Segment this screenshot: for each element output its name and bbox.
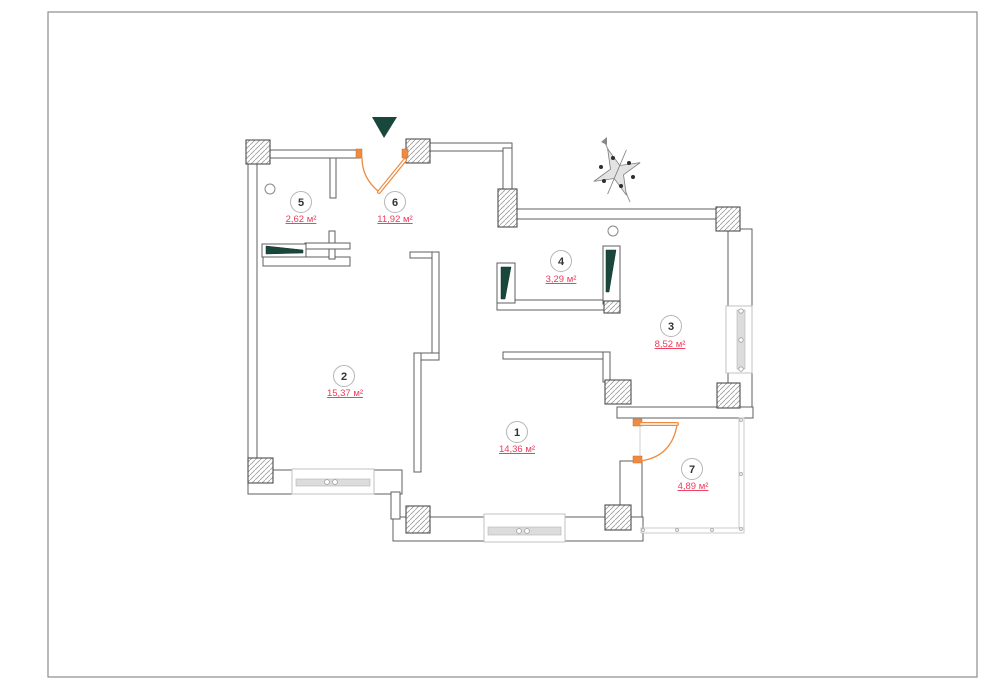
pillar (498, 189, 517, 227)
room-area-text: 8,52 м² (655, 339, 686, 350)
wall-segment (515, 209, 718, 219)
wall-segment (263, 257, 350, 266)
room-label-7: 7 4,89 м² (678, 459, 709, 493)
light-symbol (608, 226, 618, 236)
pillar (406, 139, 430, 163)
room-area-text: 4,89 м² (678, 481, 709, 492)
glazing-joint (675, 528, 678, 531)
glazing-joint (710, 528, 713, 531)
door-jamb (633, 456, 642, 463)
door-jamb (402, 149, 408, 158)
wall-segment (617, 407, 753, 418)
window-joint (739, 338, 743, 342)
light-symbol (265, 184, 275, 194)
pillar (716, 207, 740, 231)
window-room3-right (726, 306, 752, 373)
balcony-door (633, 419, 677, 463)
wall-segment (430, 143, 512, 151)
wall-segment (371, 470, 402, 494)
room-number-text: 1 (514, 427, 520, 439)
wall-segment (414, 353, 421, 472)
room-number-text: 5 (298, 197, 304, 209)
glazing-joint (739, 527, 742, 530)
pillar (248, 458, 273, 483)
room-area-text: 11,92 м² (377, 214, 412, 225)
wall-segment (728, 229, 752, 309)
window-joint (525, 529, 530, 534)
door-swing-arc (362, 158, 378, 191)
window-room1-bottom (484, 514, 565, 542)
room-area-text: 3,29 м² (546, 274, 577, 285)
wall-segment (266, 150, 360, 158)
room-area-text: 15,37 м² (327, 388, 363, 399)
room-label-3: 3 8,52 м² (655, 316, 686, 351)
entrance-door (356, 149, 408, 192)
room-label-6: 6 11,92 м² (377, 192, 412, 226)
wall-segment (503, 148, 512, 192)
glazing-bottom (641, 528, 744, 533)
pillar (605, 505, 631, 530)
compass-star-cross (595, 150, 639, 194)
compass-rose-icon (584, 137, 649, 205)
compass-north-tip (601, 137, 607, 145)
glazing-joint (739, 418, 742, 421)
room-area-text: 2,62 м² (286, 214, 317, 225)
compass-dot (627, 161, 631, 165)
window-joint (739, 309, 743, 313)
compass-dot (602, 179, 606, 183)
room-label-5: 5 2,62 м² (286, 192, 317, 226)
room-number-text: 4 (558, 256, 565, 268)
wall-segment (248, 158, 257, 470)
window-joint (739, 367, 743, 371)
room-number-text: 6 (392, 197, 398, 209)
wall-segment (432, 252, 439, 357)
room-label-1: 1 14,36 м² (499, 422, 535, 456)
room-number-text: 7 (689, 464, 695, 476)
window-joint (333, 480, 338, 485)
room-number-text: 2 (341, 371, 347, 383)
wall-segment (603, 352, 610, 382)
entrance-arrow-icon (372, 117, 397, 138)
compass-dot (599, 165, 603, 169)
window-joint (325, 480, 330, 485)
compass-dot (619, 184, 623, 188)
room-label-4: 4 3,29 м² (546, 251, 577, 286)
wall-segment (330, 158, 336, 198)
compass-dot (611, 156, 615, 160)
room-area-text: 14,36 м² (499, 444, 535, 455)
window-room2-bottom (292, 469, 374, 494)
window-joint (517, 529, 522, 534)
floor-plan-page: 1 14,36 м² 2 15,37 м² 3 8,52 м² 4 3,29 м… (0, 0, 990, 694)
wall-segment (305, 243, 350, 249)
sheet-border (48, 12, 977, 677)
floor-plan-canvas: 1 14,36 м² 2 15,37 м² 3 8,52 м² 4 3,29 м… (0, 0, 990, 694)
glazing-joint (739, 472, 742, 475)
wall-segment (503, 352, 610, 359)
pillar (246, 140, 270, 164)
pillar (604, 301, 620, 313)
room-label-2: 2 15,37 м² (327, 366, 363, 400)
door-leaf-core (379, 160, 405, 192)
compass-dot (631, 175, 635, 179)
wall-segment (391, 492, 400, 519)
room-number-text: 3 (668, 321, 674, 333)
glazing-joint (641, 528, 644, 531)
door-swing-arc (640, 425, 677, 461)
pillar (717, 383, 740, 408)
door-jamb (356, 149, 362, 158)
pillar (605, 380, 631, 404)
pillar (406, 506, 430, 533)
